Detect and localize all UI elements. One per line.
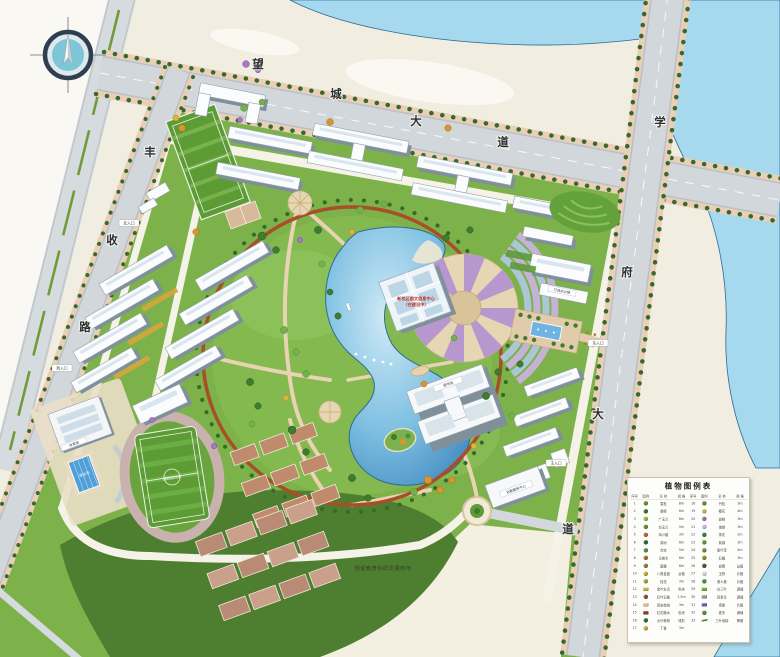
plant-symbol-icon [644, 626, 649, 631]
legend-row: 6栾树6m23紫薇3m [630, 538, 747, 546]
legend-table: 序号图例 名 称规 格 序号图例 名 称规 格 1雪松8m18丹桂3m2香樟6m… [630, 493, 747, 632]
plant-symbol-icon [702, 556, 707, 561]
road-east-char-1: 府 [621, 265, 633, 279]
road-top-char-3: 道 [497, 135, 509, 149]
plant-symbol-icon [644, 579, 649, 584]
legend-row: 10八角金盘丛植27玉簪片植 [630, 570, 747, 578]
plant-symbol-icon [702, 548, 707, 553]
north-entrance-label: 北入口 [123, 220, 135, 225]
campus-master-plan: 预留教育科研发展用地 [0, 0, 780, 657]
plant-symbol-icon [644, 501, 649, 506]
road-top-char-0: 望 [252, 57, 264, 71]
plant-symbol-icon [702, 501, 707, 506]
plant-symbol-icon [644, 509, 649, 514]
plant-symbol-icon [644, 571, 649, 576]
plant-legend-panel: 植物图例表 序号图例 名 称规 格 序号图例 名 称规 格 1雪松8m18丹桂3… [627, 477, 750, 643]
plant-symbol-icon [702, 540, 707, 545]
plant-symbol-icon [702, 509, 707, 514]
road-top-char-1: 城 [330, 87, 342, 101]
plant-symbol-icon [644, 595, 649, 600]
main-entrance-label: 主入口 [550, 460, 562, 465]
road-east-char-0: 学 [654, 115, 666, 129]
legend-row: 14西安桧柏3m31鸢尾片植 [630, 601, 747, 609]
plant-symbol-icon [702, 579, 707, 584]
plant-symbol-icon [702, 525, 707, 530]
road-east-char-2: 大 [592, 407, 604, 421]
plant-symbol-icon [644, 517, 649, 522]
east-entrance-label: 东入口 [592, 340, 604, 345]
plant-symbol-icon [644, 564, 649, 569]
plant-symbol-icon [702, 532, 707, 537]
plant-symbol-icon [644, 540, 649, 545]
legend-row: 16大叶黄杨球形33三叶地锦攀援 [630, 616, 747, 624]
center-building-label-2: （在建设中） [403, 301, 428, 308]
plant-symbol-icon [644, 618, 649, 623]
legend-row: 9国槐6m26迎春丛植 [630, 562, 747, 570]
west-entrance-label: 西入口 [56, 365, 68, 370]
plant-symbol-icon [701, 619, 707, 622]
plant-symbol-icon [643, 611, 649, 615]
plant-symbol-icon [702, 571, 707, 576]
road-west-char-0: 丰 [144, 145, 156, 159]
legend-row: 3广玉兰6m20碧桃3m [630, 515, 747, 523]
plant-symbol-icon [702, 603, 708, 607]
plant-symbol-icon [702, 595, 708, 599]
legend-row: 13红叶石楠1.5m30四季青满铺 [630, 593, 747, 601]
legend-row: 1雪松8m18丹桂3m [630, 499, 747, 507]
plant-symbol-icon [644, 532, 649, 537]
roundabout [463, 497, 491, 525]
plant-symbol-icon [643, 603, 649, 607]
legend-row: 7合欢5m24紫叶李4m [630, 546, 747, 554]
road-west-char-2: 路 [79, 320, 91, 334]
road-top-char-2: 大 [410, 114, 422, 128]
plant-symbol-icon [644, 548, 649, 553]
plant-symbol-icon [702, 564, 707, 569]
reserved-land-label: 预留教育科研发展用地 [355, 564, 412, 572]
legend-row: 2香樟6m19樱花4m [630, 507, 747, 515]
legend-row: 11桂花3m28美人蕉片植 [630, 577, 747, 585]
legend-row: 5鸡爪槭3m22茶花2m [630, 531, 747, 539]
plant-symbol-icon [644, 525, 649, 530]
plant-symbol-icon [702, 517, 707, 522]
plant-symbol-icon [643, 587, 649, 591]
plant-symbol-icon [644, 556, 649, 561]
legend-row: 12金叶女贞色块29白三叶满铺 [630, 585, 747, 593]
plant-symbol-icon [702, 610, 707, 615]
road-west-char-1: 收 [106, 233, 118, 247]
legend-row: 8马褂木6m25石榴3m [630, 554, 747, 562]
legend-row: 15红花檵木色块32麦冬满铺 [630, 609, 747, 617]
legend-row: 17丁香3m [630, 624, 747, 632]
legend-title: 植物图例表 [630, 479, 747, 493]
legend-row: 4白玉兰5m21海棠3m [630, 523, 747, 531]
road-east-char-3: 道 [562, 522, 574, 536]
plant-symbol-icon [702, 587, 708, 591]
center-building-label-1: 新校区图文信息中心 [397, 295, 436, 302]
